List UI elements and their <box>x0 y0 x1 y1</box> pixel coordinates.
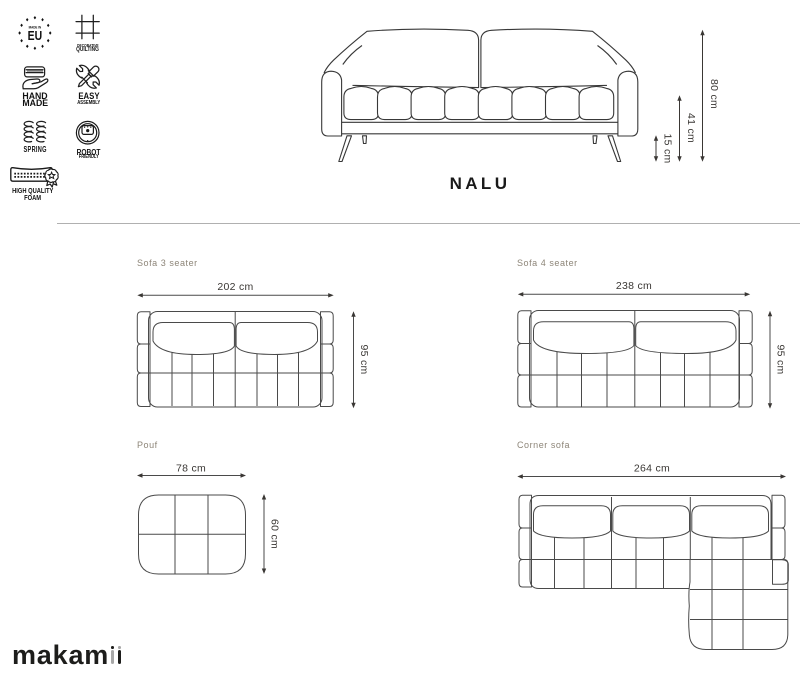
svg-text:95 cm: 95 cm <box>775 344 787 374</box>
svg-text:41 cm: 41 cm <box>685 113 697 143</box>
svg-text:78 cm: 78 cm <box>176 463 206 475</box>
svg-text:80 cm: 80 cm <box>708 79 720 109</box>
svg-text:238 cm: 238 cm <box>616 280 652 292</box>
svg-text:202 cm: 202 cm <box>217 281 253 293</box>
svg-text:EU: EU <box>28 28 43 43</box>
svg-text:95 cm: 95 cm <box>358 344 370 374</box>
svg-text:15 cm: 15 cm <box>662 133 674 163</box>
svg-text:264 cm: 264 cm <box>634 463 670 475</box>
svg-text:60 cm: 60 cm <box>269 519 281 549</box>
